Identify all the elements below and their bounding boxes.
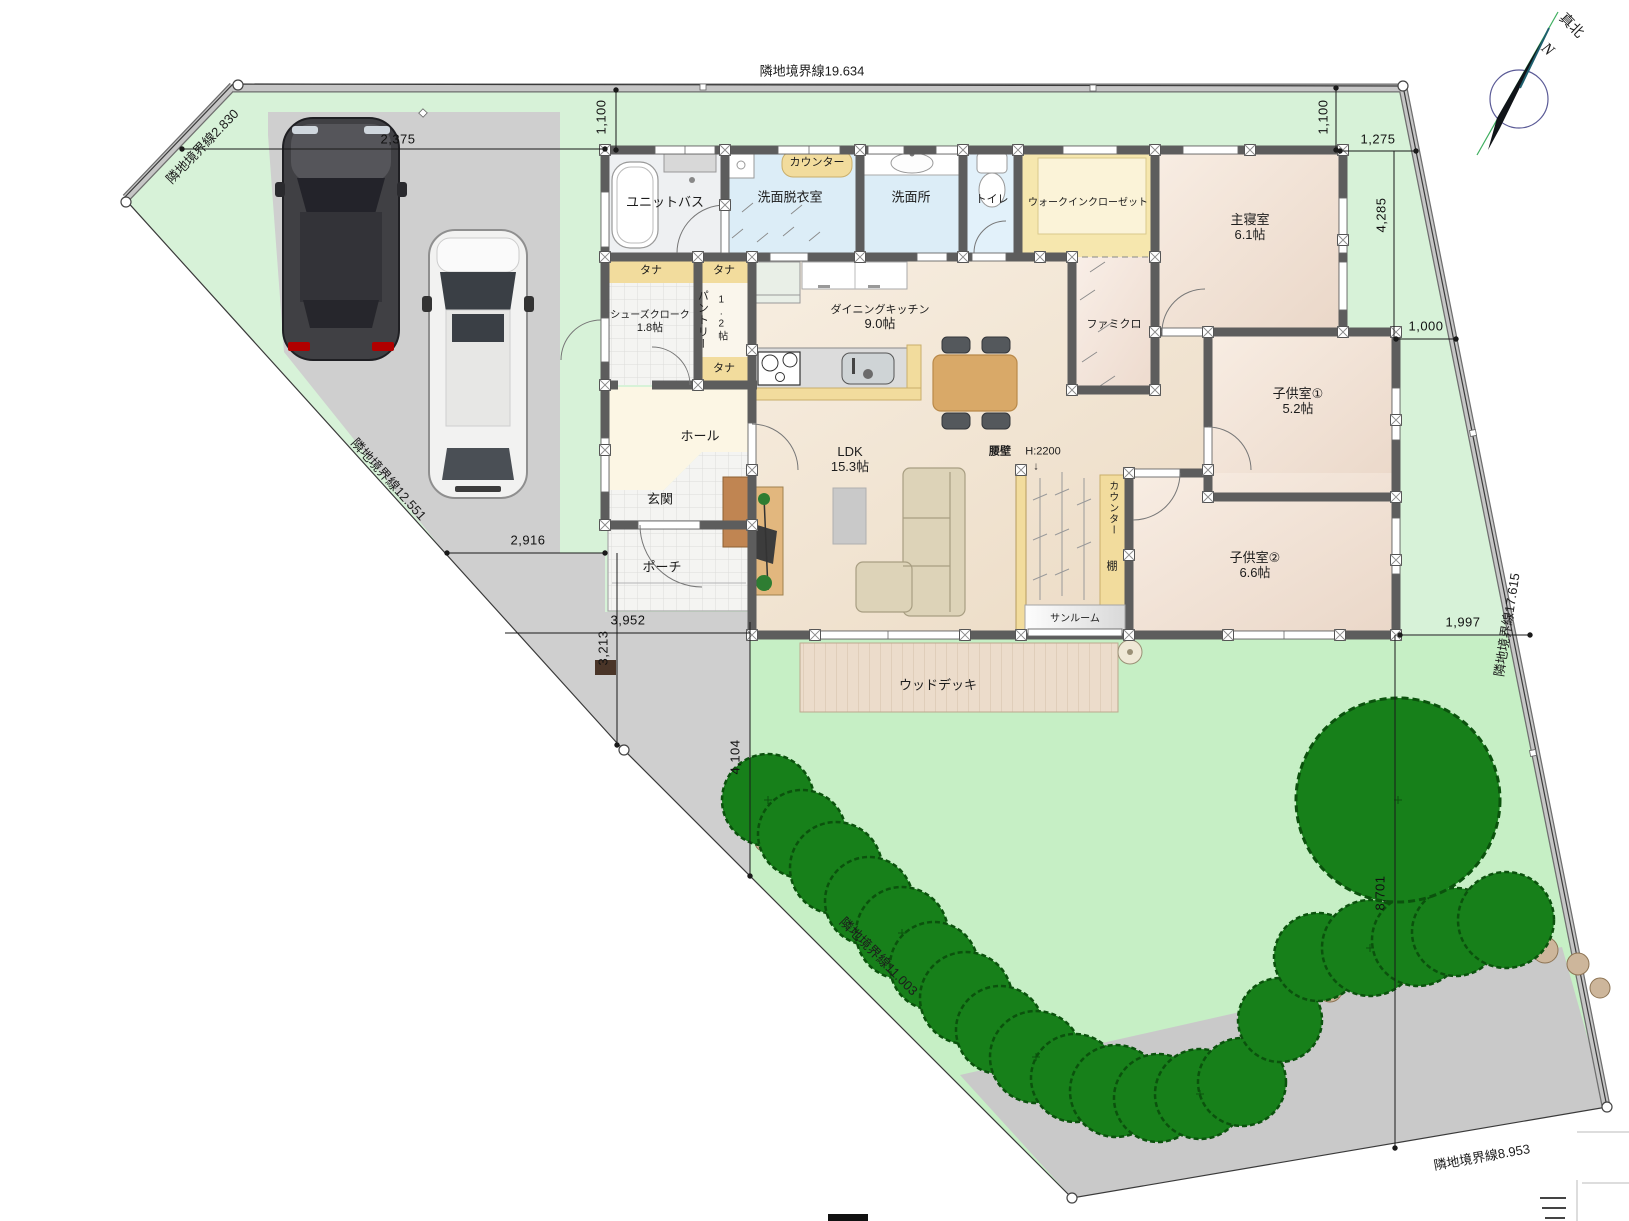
dim-sw-width: 3,952 xyxy=(610,614,645,629)
site-plan-drawing xyxy=(0,0,1629,1221)
label-ldk-size: 15.3帖 xyxy=(831,459,869,474)
label-shoes-size: 1.8帖 xyxy=(637,321,663,333)
corner-fragment xyxy=(1540,1132,1629,1221)
label-ldk: LDK 15.3帖 xyxy=(831,445,869,475)
dim-sw-height: 4,104 xyxy=(729,739,744,774)
dim-w-mid: 2,916 xyxy=(510,534,545,549)
dim-e-mid: 4,285 xyxy=(1375,197,1390,232)
dim-e-low: 1,000 xyxy=(1408,320,1443,335)
label-toilet: トイレ xyxy=(976,194,1009,207)
dim-sw-left: 3,213 xyxy=(597,630,612,665)
car-dark xyxy=(275,118,407,360)
label-shoes-closet: シューズクローク 1.8帖 xyxy=(610,310,690,334)
kitchen-counter-front xyxy=(754,388,921,400)
label-pantry-size: 1.2帖 xyxy=(715,295,727,342)
label-wic: ウォークインクローゼット xyxy=(1028,197,1148,209)
label-master-size: 6.1帖 xyxy=(1234,227,1265,242)
label-dk-size: 9.0帖 xyxy=(864,316,895,331)
fridge xyxy=(756,262,800,303)
site-plan-canvas: 隣地境界線19.634 隣地境界線2.830 隣地境界線12.551 隣地境界線… xyxy=(0,0,1629,1221)
kitchen-sink xyxy=(842,353,894,384)
label-kids1: 子供室① 5.2帖 xyxy=(1273,387,1324,417)
dim-e-top: 1,275 xyxy=(1360,133,1395,148)
label-laundry-counter: カウンター xyxy=(790,157,845,170)
rug xyxy=(833,488,866,544)
shoe-cabinet xyxy=(723,477,749,547)
dim-n-right-offset: 1,100 xyxy=(1317,99,1332,134)
bath-panel xyxy=(664,152,716,172)
dim-se-width: 1,997 xyxy=(1445,616,1480,631)
half-wall-arrow-icon: ↓ xyxy=(1033,461,1039,474)
dining-table xyxy=(933,355,1017,411)
label-hall: ホール xyxy=(680,430,719,445)
dim-se-height: 8,701 xyxy=(1374,875,1389,910)
toilet-tank xyxy=(977,153,1007,173)
compass-rose xyxy=(1477,12,1558,155)
dim-nw-offset: 2,375 xyxy=(380,133,415,148)
label-dining-kitchen: ダイニングキッチン 9.0帖 xyxy=(831,304,930,332)
label-master: 主寝室 6.1帖 xyxy=(1230,213,1269,243)
label-sunroom: サンルーム xyxy=(1050,613,1100,625)
label-kids2-size: 6.6帖 xyxy=(1239,565,1270,580)
label-tana-3: タナ xyxy=(713,363,735,376)
label-half-wall: 腰壁 xyxy=(989,446,1011,459)
label-tana-2: タナ xyxy=(713,265,735,278)
label-half-wall-height: H:2200 xyxy=(1025,446,1060,459)
label-laundry: 洗面脱衣室 xyxy=(757,191,822,206)
label-shelf: 棚 xyxy=(1107,561,1118,574)
boundary-label-north: 隣地境界線19.634 xyxy=(760,65,865,80)
car-white xyxy=(422,230,534,498)
washing-machine xyxy=(728,152,754,178)
plant-2 xyxy=(756,575,772,591)
label-unit-bath: ユニットバス xyxy=(626,196,704,211)
label-counter-vertical: カウンター xyxy=(1106,481,1118,536)
label-tana-1: タナ xyxy=(640,265,662,278)
label-kids2: 子供室② 6.6帖 xyxy=(1230,551,1281,581)
label-famiclo: ファミクロ xyxy=(1087,319,1142,332)
plant xyxy=(758,493,770,505)
label-kids1-size: 5.2帖 xyxy=(1282,401,1313,416)
label-wood-deck: ウッドデッキ xyxy=(899,679,977,694)
label-porch: ポーチ xyxy=(642,561,681,576)
dim-n-left-offset: 1,100 xyxy=(595,99,610,134)
label-entrance: 玄関 xyxy=(647,493,673,508)
page-edge-mark xyxy=(828,1214,868,1221)
label-pantry: パントリー xyxy=(696,290,709,350)
label-washroom: 洗面所 xyxy=(891,191,930,206)
